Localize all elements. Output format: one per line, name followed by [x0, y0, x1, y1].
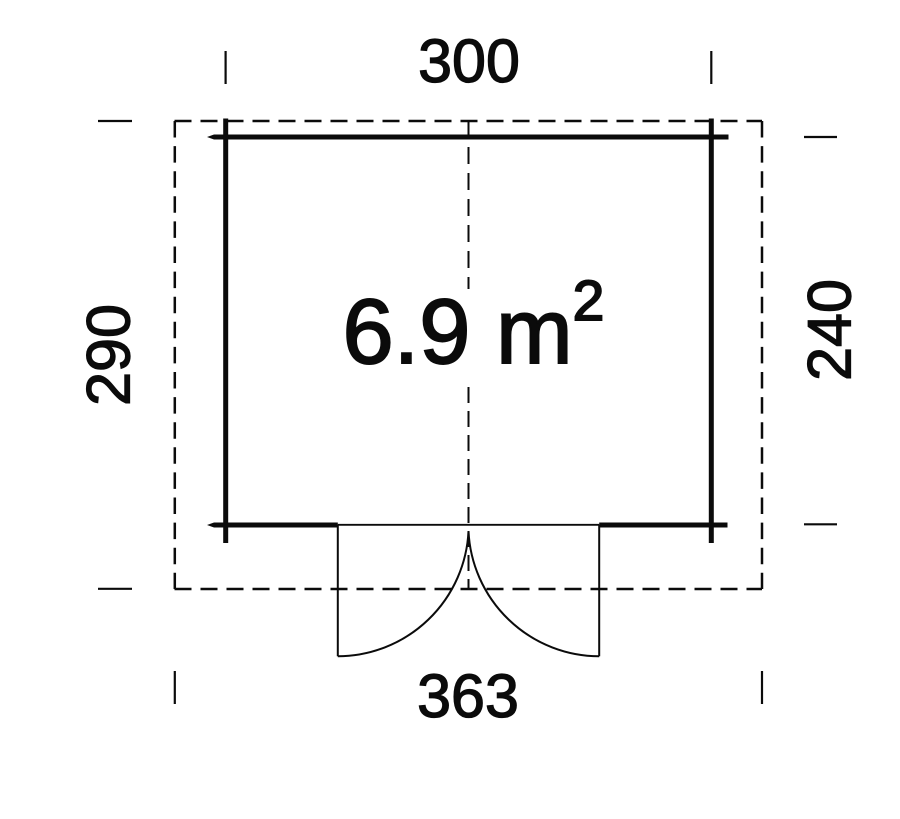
svg-text:300: 300 [418, 27, 520, 95]
svg-text:290: 290 [75, 304, 143, 406]
svg-text:240: 240 [796, 279, 864, 381]
svg-text:6.9 m2: 6.9 m2 [343, 269, 605, 383]
svg-text:363: 363 [417, 662, 519, 730]
